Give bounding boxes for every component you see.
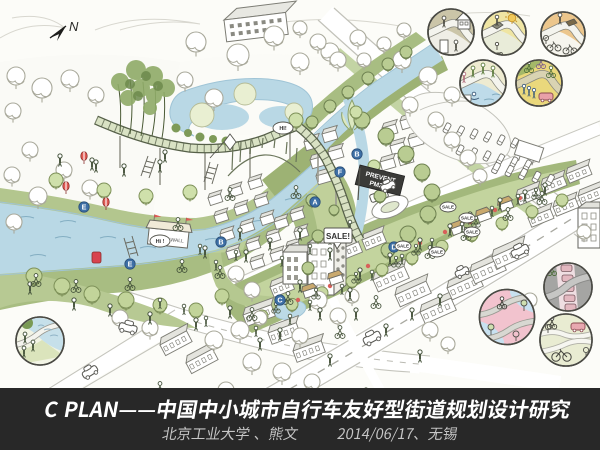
svg-text:Hi !: Hi ! [156, 239, 165, 245]
svg-text:E: E [128, 260, 133, 269]
svg-text:F: F [338, 168, 343, 177]
svg-text:B: B [354, 150, 359, 159]
svg-text:B: B [218, 238, 223, 247]
svg-text:SALE: SALE [461, 216, 473, 221]
svg-text:E: E [82, 203, 87, 212]
svg-text:SALE!: SALE! [326, 232, 350, 241]
svg-text:SALE: SALE [466, 230, 478, 235]
svg-text:SALE: SALE [397, 244, 409, 249]
svg-text:N: N [69, 19, 79, 34]
svg-text:HI!: HI! [279, 126, 287, 132]
svg-text:A: A [312, 198, 317, 207]
svg-text:SALE: SALE [442, 205, 454, 210]
svg-text:SALE: SALE [431, 250, 443, 255]
svg-text:C: C [277, 296, 282, 305]
svg-text:P: P [545, 36, 548, 41]
